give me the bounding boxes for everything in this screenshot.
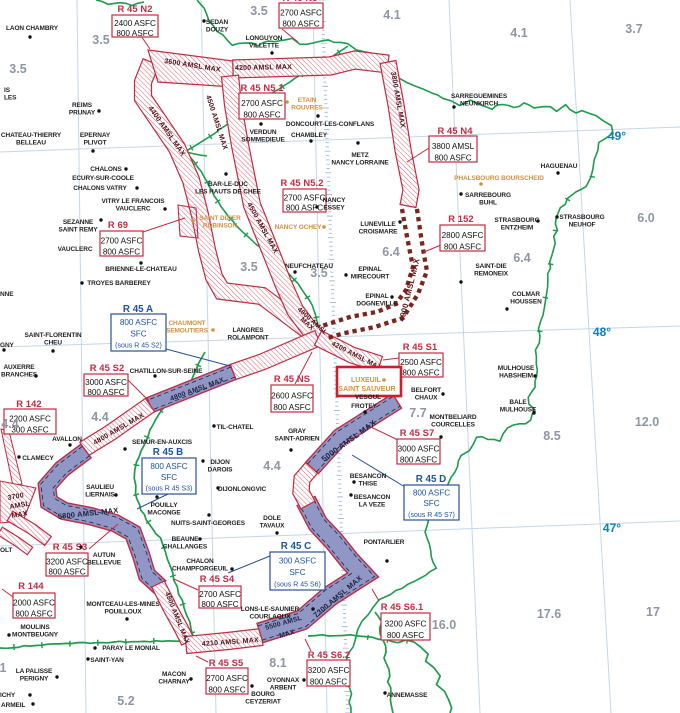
svg-text:LONS-LE-SAUNIER: LONS-LE-SAUNIER (241, 606, 300, 613)
svg-text:2700 ASFC: 2700 ASFC (280, 9, 322, 18)
svg-text:EPINAL: EPINAL (365, 293, 388, 300)
svg-text:VAUCLERC: VAUCLERC (58, 246, 93, 253)
svg-text:BRANCHES: BRANCHES (1, 372, 38, 379)
svg-text:MOULINS: MOULINS (20, 624, 50, 631)
svg-text:5.2: 5.2 (117, 694, 134, 708)
svg-text:MONTCEAU-LES-MINES: MONTCEAU-LES-MINES (86, 601, 160, 608)
svg-text:R 45 B: R 45 B (153, 447, 184, 458)
svg-text:6.4: 6.4 (513, 251, 530, 265)
svg-text:800 ASFC: 800 ASFC (402, 369, 439, 378)
svg-text:48°: 48° (593, 325, 611, 339)
svg-text:CHALONS VATRY: CHALONS VATRY (73, 185, 127, 192)
svg-text:R 45 N4: R 45 N4 (437, 125, 473, 136)
svg-text:R 45 S6.2: R 45 S6.2 (308, 649, 351, 660)
svg-text:2500 ASFC: 2500 ASFC (400, 358, 442, 367)
svg-text:NUITS-SAINT-GEORGES: NUITS-SAINT-GEORGES (171, 520, 246, 527)
svg-text:THISE: THISE (359, 481, 378, 488)
svg-text:3000 ASFC: 3000 ASFC (398, 445, 440, 454)
svg-text:BELLEAU: BELLEAU (16, 140, 46, 147)
svg-text:CHEU: CHEU (44, 340, 62, 347)
svg-text:COURCELLES: COURCELLES (431, 422, 476, 429)
svg-text:SAINT-DIE: SAINT-DIE (475, 263, 507, 270)
svg-text:DOGNEVILLE: DOGNEVILLE (356, 301, 398, 308)
svg-text:3200 ASFC: 3200 ASFC (308, 666, 350, 675)
svg-text:REIMS: REIMS (72, 102, 93, 109)
svg-text:BELFORT: BELFORT (411, 387, 441, 394)
svg-text:ARMEIL: ARMEIL (1, 702, 25, 709)
svg-text:SAINT-YAN: SAINT-YAN (90, 657, 124, 664)
svg-text:MACON: MACON (162, 671, 186, 678)
svg-text:ROLAMPONT: ROLAMPONT (228, 335, 269, 342)
svg-text:ICHY: ICHY (0, 692, 16, 699)
svg-text:R 45 S4: R 45 S4 (200, 573, 235, 584)
svg-text:CHARNAY: CHARNAY (158, 679, 190, 686)
svg-text:2700 ASFC: 2700 ASFC (241, 99, 283, 108)
svg-text:16.0: 16.0 (432, 618, 456, 632)
svg-text:PLIVOT: PLIVOT (84, 140, 107, 147)
svg-text:REMONEIX: REMONEIX (474, 271, 509, 278)
svg-text:CHAMPFORGEUIL: CHAMPFORGEUIL (172, 566, 228, 573)
svg-text:2600 ASFC: 2600 ASFC (271, 391, 313, 400)
svg-text:CHAMBLEY: CHAMBLEY (291, 132, 328, 139)
svg-text:AUTUN: AUTUN (93, 552, 116, 559)
svg-text:MONTBEUGNY: MONTBEUGNY (12, 632, 59, 639)
svg-text:GNY: GNY (0, 342, 15, 349)
svg-text:PRUNAY: PRUNAY (69, 110, 96, 117)
svg-text:R 45 C: R 45 C (281, 541, 312, 552)
svg-text:R 144: R 144 (18, 580, 44, 591)
svg-text:DONCOURT-LES-CONFLANS: DONCOURT-LES-CONFLANS (286, 121, 375, 128)
svg-text:800 ASFC: 800 ASFC (387, 631, 424, 640)
svg-text:VERDUN: VERDUN (250, 129, 277, 136)
svg-text:HOUSSEN: HOUSSEN (510, 299, 542, 306)
svg-text:VITRY LE FRANCOIS: VITRY LE FRANCOIS (102, 198, 166, 205)
svg-text:NEUHOF: NEUHOF (569, 222, 596, 229)
svg-text:NEUNKIRCH: NEUNKIRCH (460, 101, 499, 108)
svg-text:3.5: 3.5 (240, 260, 257, 274)
svg-text:PONTARLIER: PONTARLIER (364, 539, 405, 546)
svg-text:LANGRES: LANGRES (232, 327, 264, 334)
svg-text:800 ASFC: 800 ASFC (444, 242, 481, 251)
svg-text:CHALONS: CHALONS (90, 166, 122, 173)
svg-text:SEMUR-EN-AUXCIS: SEMUR-EN-AUXCIS (132, 439, 193, 446)
svg-text:NANCY: NANCY (323, 197, 346, 204)
svg-text:800 ASFC: 800 ASFC (273, 403, 310, 412)
svg-text:SAINT SAUVEUR: SAINT SAUVEUR (338, 386, 395, 393)
svg-text:800 ASFC: 800 ASFC (15, 609, 52, 618)
svg-text:R 45 N5.1: R 45 N5.1 (240, 82, 283, 93)
svg-text:(sous R 45 S7): (sous R 45 S7) (408, 512, 455, 519)
svg-text:2800 ASFC: 2800 ASFC (442, 231, 484, 240)
svg-text:SARREBOURG: SARREBOURG (465, 192, 511, 199)
svg-text:800 ASFC: 800 ASFC (150, 462, 187, 471)
svg-text:800 ASFC: 800 ASFC (116, 29, 153, 38)
svg-text:4.4: 4.4 (91, 410, 108, 424)
svg-text:ROBINSON: ROBINSON (203, 223, 238, 230)
svg-text:FROTEY: FROTEY (351, 403, 378, 410)
svg-text:LIERNAIS: LIERNAIS (85, 492, 115, 499)
svg-text:MULHOUSE: MULHOUSE (498, 365, 535, 372)
svg-text:COLMAR: COLMAR (512, 291, 540, 298)
svg-text:MONTBELIARD: MONTBELIARD (430, 414, 477, 421)
svg-text:SOMMEDIEUE: SOMMEDIEUE (241, 137, 285, 144)
svg-text:LONGUYON: LONGUYON (246, 35, 283, 42)
svg-text:SARREGUEMINES: SARREGUEMINES (451, 93, 508, 100)
svg-text:(sous R 45 S2): (sous R 45 S2) (115, 343, 162, 350)
svg-text:4.1: 4.1 (383, 8, 400, 22)
svg-text:MIRECOURT: MIRECOURT (351, 274, 390, 281)
svg-text:COURLAOUX: COURLAOUX (250, 614, 292, 621)
svg-text:CHALLANGES: CHALLANGES (163, 544, 208, 551)
svg-text:800 ASFC: 800 ASFC (87, 388, 124, 397)
svg-text:DOLE: DOLE (263, 515, 281, 522)
svg-text:LES: LES (4, 95, 17, 102)
svg-text:800 ASFC: 800 ASFC (120, 318, 157, 327)
svg-text:SEDAN: SEDAN (206, 19, 229, 26)
svg-text:VESOUL: VESOUL (355, 394, 381, 401)
svg-text:STRASBOURG: STRASBOURG (494, 217, 539, 224)
svg-text:2700 ASFC: 2700 ASFC (101, 237, 143, 246)
svg-text:SEZANNE: SEZANNE (63, 219, 94, 226)
svg-text:ESSEY: ESSEY (323, 205, 345, 212)
svg-text:ECURY-SUR-COOLE: ECURY-SUR-COOLE (72, 175, 135, 182)
svg-text:7.7: 7.7 (409, 406, 426, 420)
svg-text:3.5: 3.5 (92, 33, 109, 47)
svg-text:3800 AMSL: 3800 AMSL (432, 142, 475, 151)
svg-text:DOUZY: DOUZY (206, 27, 229, 34)
svg-text:R 69: R 69 (108, 219, 128, 230)
svg-text:2400 ASFC: 2400 ASFC (114, 19, 156, 28)
svg-text:ENTZHEIM: ENTZHEIM (501, 225, 533, 232)
svg-text:SEMOUTIERS: SEMOUTIERS (166, 328, 209, 335)
svg-text:3.5: 3.5 (250, 4, 267, 18)
svg-text:CHAUX: CHAUX (415, 395, 438, 402)
svg-text:TROYES BARBEREY: TROYES BARBEREY (87, 280, 151, 287)
svg-text:R 45 NS: R 45 NS (274, 373, 310, 384)
svg-text:SFC: SFC (423, 499, 439, 508)
svg-text:DIJON: DIJON (210, 459, 230, 466)
svg-text:BESANCON: BESANCON (354, 494, 391, 501)
svg-text:IS: IS (4, 87, 11, 94)
svg-text:LUNEVILLE: LUNEVILLE (360, 221, 396, 228)
svg-text:6.4: 6.4 (382, 245, 399, 259)
svg-text:CHALON: CHALON (186, 558, 214, 565)
svg-text:8.1: 8.1 (269, 656, 286, 670)
svg-text:CROISMARE: CROISMARE (359, 229, 399, 236)
svg-text:CLAMECY: CLAMECY (22, 455, 54, 462)
svg-text:2700 ASFC: 2700 ASFC (199, 590, 241, 599)
svg-text:BESANCON: BESANCON (350, 473, 387, 480)
svg-text:4200 AMSL MAX: 4200 AMSL MAX (235, 64, 292, 72)
svg-text:POUILLOUX: POUILLOUX (104, 609, 142, 616)
svg-text:6.0: 6.0 (637, 211, 654, 225)
svg-text:3200 ASFC: 3200 ASFC (46, 558, 88, 567)
svg-text:3000 ASFC: 3000 ASFC (85, 378, 127, 387)
svg-text:SAULIEU: SAULIEU (86, 484, 114, 491)
svg-text:BRIENNE-LE-CHATEAU: BRIENNE-LE-CHATEAU (105, 266, 177, 273)
svg-text:2700 ASFC: 2700 ASFC (206, 674, 248, 683)
svg-text:800 ASFC: 800 ASFC (208, 685, 245, 694)
svg-text:SAINT DIZIER: SAINT DIZIER (199, 215, 241, 222)
svg-text:(sous R 45 S6): (sous R 45 S6) (274, 582, 321, 589)
svg-text:R 45 S1: R 45 S1 (403, 341, 438, 352)
svg-text:LA VEZE: LA VEZE (359, 502, 386, 509)
svg-text:BOURG: BOURG (251, 691, 275, 698)
svg-text:CEYZERIAT: CEYZERIAT (245, 699, 281, 706)
svg-text:SFC: SFC (161, 473, 177, 482)
svg-text:PARAY LE MONIAL: PARAY LE MONIAL (102, 645, 160, 652)
svg-text:3200 ASFC: 3200 ASFC (385, 619, 427, 628)
svg-text:STRASBOURG: STRASBOURG (559, 214, 604, 221)
svg-text:SAINT-FLORENTIN: SAINT-FLORENTIN (25, 332, 82, 339)
svg-text:BUHL: BUHL (479, 200, 497, 207)
svg-text:R 45 N2: R 45 N2 (117, 3, 152, 14)
svg-text:R 142: R 142 (16, 398, 42, 409)
svg-text:4.4: 4.4 (1, 417, 18, 431)
svg-text:800 ASFC: 800 ASFC (400, 455, 437, 464)
svg-text:800 ASFC: 800 ASFC (310, 677, 347, 686)
svg-text:800 ASFC: 800 ASFC (282, 19, 319, 28)
svg-text:BEAUNE: BEAUNE (172, 536, 200, 543)
svg-text:HABSHEIM: HABSHEIM (499, 373, 533, 380)
svg-text:BELLEVUE: BELLEVUE (87, 560, 122, 567)
svg-text:NANCY LORRAINE: NANCY LORRAINE (331, 160, 389, 167)
svg-text:CHATILLON-SUR-SEINE: CHATILLON-SUR-SEINE (130, 368, 203, 375)
svg-text:LUXEUIL: LUXEUIL (351, 377, 382, 384)
svg-text:3.5: 3.5 (310, 266, 327, 280)
svg-text:R 45 S2: R 45 S2 (90, 362, 125, 373)
svg-text:17.6: 17.6 (537, 607, 561, 621)
svg-text:LAON CHAMBRY: LAON CHAMBRY (6, 25, 59, 32)
svg-text:SFC: SFC (130, 329, 146, 338)
svg-text:METZ: METZ (351, 152, 368, 159)
svg-text:VAUCLERC: VAUCLERC (116, 206, 151, 213)
svg-text:OYONNAX: OYONNAX (267, 677, 300, 684)
svg-text:MACONGE: MACONGE (147, 510, 181, 517)
svg-text:800 ASFC: 800 ASFC (413, 489, 450, 498)
svg-text:MULHOUSE: MULHOUSE (500, 407, 537, 414)
svg-text:AVALLON: AVALLON (52, 436, 82, 443)
svg-text:HAGUENAU: HAGUENAU (541, 163, 578, 170)
svg-text:800 ASFC: 800 ASFC (201, 600, 238, 609)
svg-text:ROUVRES: ROUVRES (291, 105, 323, 112)
svg-text:POUILLY: POUILLY (151, 502, 179, 509)
svg-text:49°: 49° (608, 129, 626, 143)
svg-text:LA PALISSE: LA PALISSE (16, 668, 53, 675)
svg-text:800 ASFC: 800 ASFC (103, 247, 140, 256)
svg-text:SAINT-ADRIEN: SAINT-ADRIEN (274, 436, 319, 443)
svg-text:GRAY: GRAY (288, 428, 307, 435)
svg-text:4.4: 4.4 (263, 459, 280, 473)
svg-text:ARBENT: ARBENT (270, 685, 297, 692)
svg-text:R 45 N5.2: R 45 N5.2 (280, 177, 323, 188)
svg-text:12.0: 12.0 (635, 415, 659, 429)
svg-text:R 152: R 152 (448, 213, 474, 224)
svg-text:300 ASFC: 300 ASFC (279, 557, 316, 566)
svg-text:NANCY OCHEY: NANCY OCHEY (275, 224, 323, 231)
svg-text:CHAUMONT: CHAUMONT (168, 320, 205, 327)
svg-text:DIJONLONGVIC: DIJONLONGVIC (218, 486, 267, 493)
svg-text:BAR-LE-DUC: BAR-LE-DUC (208, 181, 248, 188)
svg-text:ANNEMASSE: ANNEMASSE (387, 692, 428, 699)
svg-text:ETAIN: ETAIN (298, 97, 317, 104)
svg-text:2700 ASFC: 2700 ASFC (284, 194, 326, 203)
svg-text:1: 1 (0, 661, 7, 675)
svg-text:PHALSBOURG BOURSCHEID: PHALSBOURG BOURSCHEID (454, 175, 544, 182)
svg-text:OLT: OLT (0, 547, 12, 554)
svg-text:17: 17 (646, 605, 660, 619)
svg-text:BALE: BALE (509, 399, 527, 406)
svg-text:TAVAUX: TAVAUX (260, 523, 285, 530)
svg-text:R 45 S5: R 45 S5 (209, 657, 244, 668)
svg-text:8.5: 8.5 (543, 429, 560, 443)
svg-text:TIL-CHATEL: TIL-CHATEL (217, 424, 254, 431)
svg-text:R 45 D: R 45 D (416, 474, 447, 485)
svg-text:R 45 S6.1: R 45 S6.1 (381, 601, 424, 612)
svg-text:EPERNAY: EPERNAY (80, 132, 111, 139)
svg-text:NNE: NNE (0, 291, 14, 298)
svg-text:800 ASFC: 800 ASFC (243, 110, 280, 119)
svg-text:SFC: SFC (289, 568, 305, 577)
svg-text:LES HAUTS DE CHEE: LES HAUTS DE CHEE (195, 189, 262, 196)
svg-text:800 ASFC: 800 ASFC (48, 568, 85, 577)
svg-text:3.7: 3.7 (625, 22, 642, 36)
svg-text:CHATEAU-THIERRY: CHATEAU-THIERRY (1, 132, 62, 139)
svg-text:4.1: 4.1 (510, 26, 527, 40)
svg-text:2000 ASFC: 2000 ASFC (13, 599, 55, 608)
svg-text:AUXERRE: AUXERRE (3, 364, 35, 371)
svg-text:PERIGNY: PERIGNY (20, 676, 49, 683)
svg-text:DAROIS: DAROIS (208, 467, 233, 474)
svg-text:R 45 S7: R 45 S7 (400, 427, 435, 438)
svg-text:SAINT REMY: SAINT REMY (58, 227, 98, 234)
svg-text:(sous R 45 S3): (sous R 45 S3) (146, 486, 193, 493)
svg-text:800 ASFC: 800 ASFC (434, 153, 471, 162)
svg-text:R 45 A: R 45 A (123, 304, 153, 315)
svg-text:3.5: 3.5 (9, 62, 26, 76)
svg-text:47°: 47° (603, 521, 621, 535)
svg-text:VILLETTE: VILLETTE (249, 43, 280, 50)
svg-text:EPINAL: EPINAL (358, 266, 381, 273)
